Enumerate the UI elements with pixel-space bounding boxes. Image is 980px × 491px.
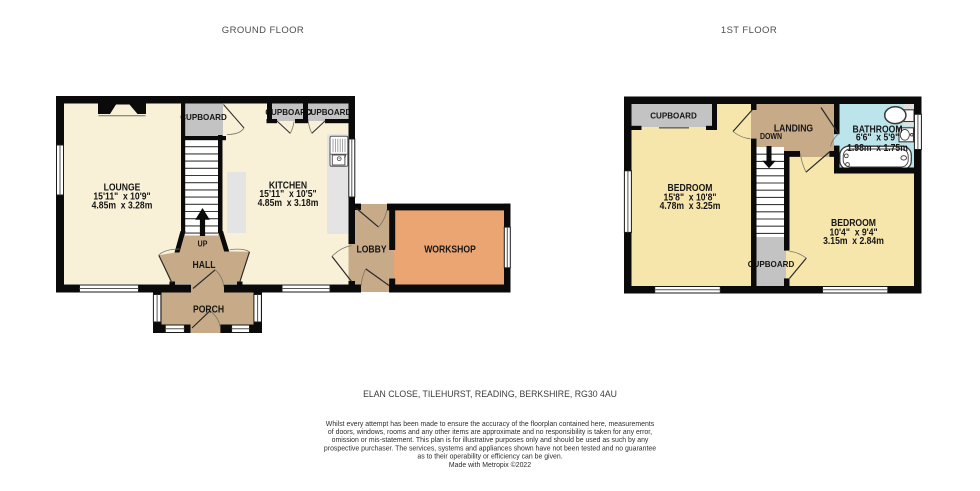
svg-text:GROUND FLOOR: GROUND FLOOR [222,25,304,36]
svg-text:of doors, windows, rooms and a: of doors, windows, rooms and any other i… [328,429,652,436]
svg-text:3.15m x 2.84m: 3.15m x 2.84m [823,235,884,247]
svg-text:HALL: HALL [193,259,216,271]
svg-text:4.78m x 3.25m: 4.78m x 3.25m [660,200,721,212]
svg-text:as to their operability or eff: as to their operability or efficiency ca… [417,453,562,460]
svg-text:omission or mis-statement. Thi: omission or mis-statement. This plan is … [332,437,649,444]
svg-text:ELAN CLOSE, TILEHURST, READING: ELAN CLOSE, TILEHURST, READING, BERKSHIR… [363,389,617,399]
svg-text:LOBBY: LOBBY [356,244,387,256]
svg-text:DOWN: DOWN [760,131,782,141]
svg-text:CUPBOARD: CUPBOARD [650,110,697,120]
svg-text:4.85m x 3.18m: 4.85m x 3.18m [258,197,319,209]
svg-text:1ST FLOOR: 1ST FLOOR [721,25,777,36]
svg-text:PORCH: PORCH [193,304,224,316]
svg-text:CUPBOARD: CUPBOARD [305,107,352,117]
svg-text:UP: UP [198,239,208,249]
svg-text:Whilst every attempt has been: Whilst every attempt has been made to en… [326,421,655,428]
svg-text:prospective purchaser. The ser: prospective purchaser. The services, sys… [324,445,656,452]
svg-text:Made with Metropix ©2022: Made with Metropix ©2022 [449,461,531,469]
svg-text:4.85m x 3.28m: 4.85m x 3.28m [92,200,153,212]
svg-text:CUPBOARD: CUPBOARD [180,112,227,122]
svg-text:1.98m x 1.75m: 1.98m x 1.75m [847,142,908,154]
svg-text:WORKSHOP: WORKSHOP [424,244,476,256]
